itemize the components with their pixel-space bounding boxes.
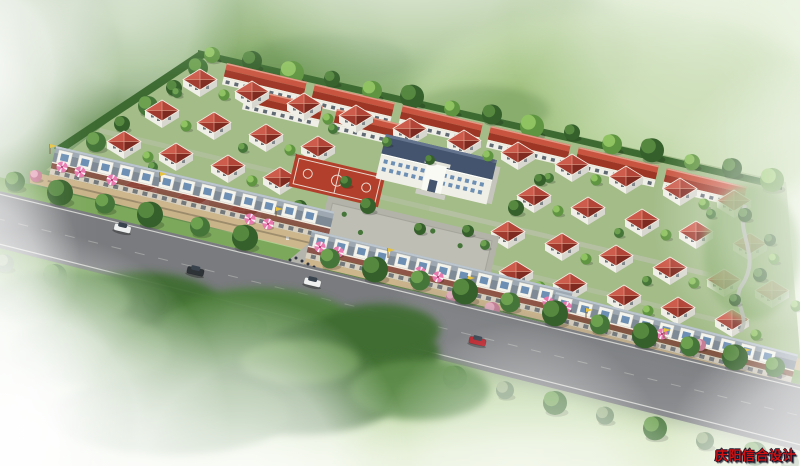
scene-canvas xyxy=(0,0,800,466)
pedestrian xyxy=(307,263,310,266)
watermark-text: 庆阳信合设计 xyxy=(715,445,796,464)
pedestrian xyxy=(295,257,298,260)
pedestrian xyxy=(301,260,304,263)
aerial-render: 庆阳信合设计 xyxy=(0,0,800,466)
pedestrian xyxy=(289,259,292,262)
